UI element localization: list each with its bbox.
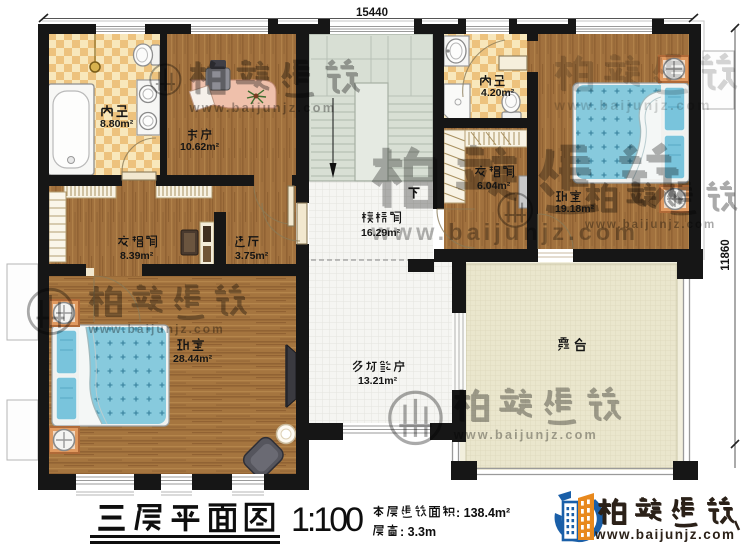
svg-text:: 138.4m²: : 138.4m²	[456, 506, 510, 520]
svg-text:6.04m²: 6.04m²	[477, 180, 511, 192]
svg-text:16.29m²: 16.29m²	[361, 227, 401, 239]
svg-text:3.75m²: 3.75m²	[235, 250, 269, 262]
svg-text:: 3.3m: : 3.3m	[400, 525, 436, 539]
svg-text:28.44m²: 28.44m²	[173, 353, 213, 365]
svg-text:8.80m²: 8.80m²	[100, 118, 134, 130]
svg-text:13.21m²: 13.21m²	[358, 375, 398, 387]
svg-text:1:100: 1:100	[291, 501, 364, 539]
svg-text:11860: 11860	[720, 239, 732, 270]
svg-text:15440: 15440	[356, 7, 388, 19]
svg-text:www.baijunjz.com: www.baijunjz.com	[594, 527, 736, 542]
svg-text:4.20m²: 4.20m²	[481, 87, 515, 99]
svg-text:8.39m²: 8.39m²	[120, 250, 154, 262]
svg-text:19.18m²: 19.18m²	[555, 203, 595, 215]
svg-text:10.62m²: 10.62m²	[180, 141, 220, 153]
